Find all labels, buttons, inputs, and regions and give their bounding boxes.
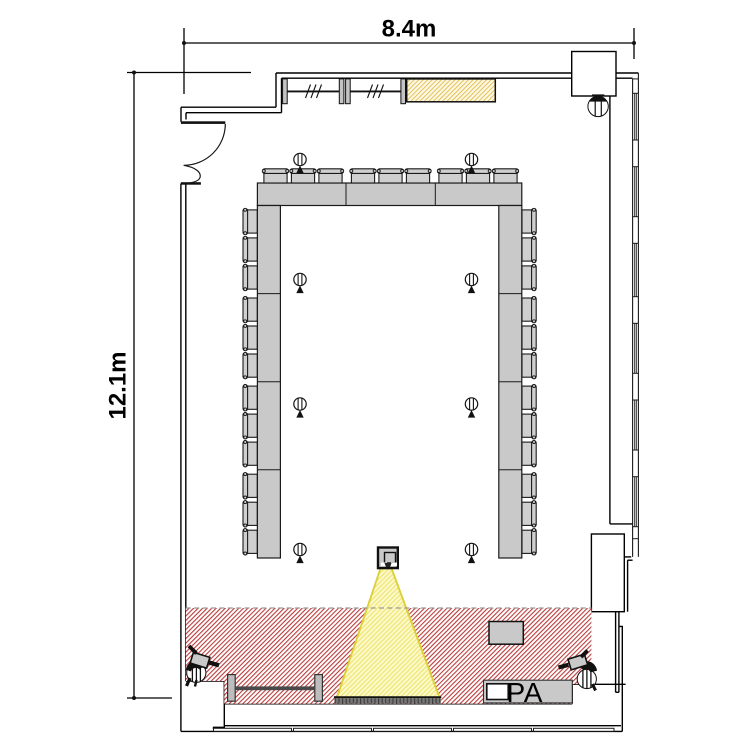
svg-text:12.1m: 12.1m [105,351,132,419]
svg-text:PA: PA [507,677,543,708]
svg-text:8.4m: 8.4m [382,16,437,43]
